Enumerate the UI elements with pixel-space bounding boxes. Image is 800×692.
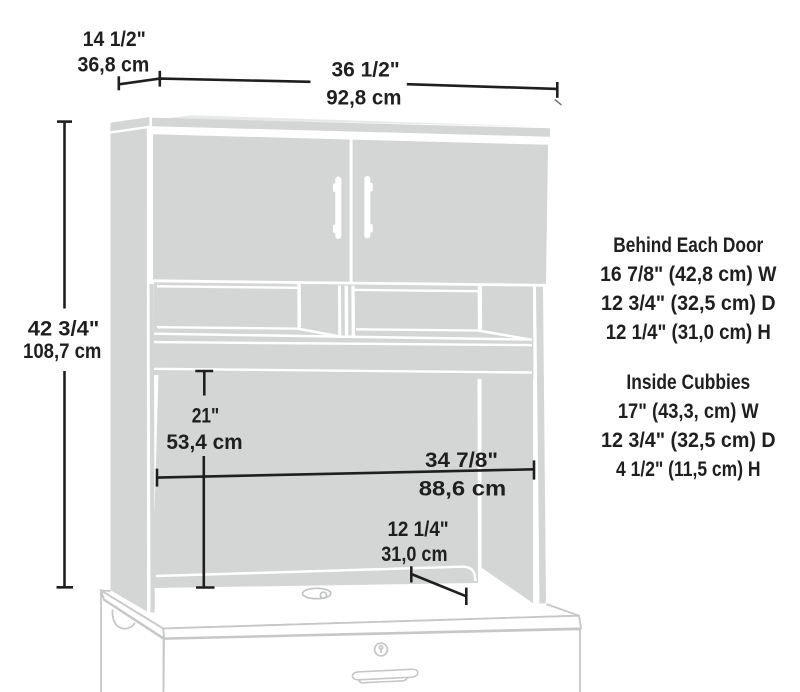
svg-text:4 1/2" (11,5 cm) H: 4 1/2" (11,5 cm) H (616, 457, 761, 481)
svg-text:12 3/4" (32,5 cm) D: 12 3/4" (32,5 cm) D (601, 291, 776, 315)
svg-text:42 3/4": 42 3/4" (28, 317, 100, 341)
svg-text:36 1/2": 36 1/2" (331, 58, 399, 82)
svg-text:17" (43,3, cm) W: 17" (43,3, cm) W (618, 399, 759, 423)
svg-text:34 7/8": 34 7/8" (425, 448, 498, 472)
svg-text:88,6 cm: 88,6 cm (419, 477, 507, 501)
svg-text:12 3/4" (32,5 cm) D: 12 3/4" (32,5 cm) D (601, 428, 776, 452)
svg-text:108,7 cm: 108,7 cm (23, 339, 101, 363)
svg-text:12 1/4" (31,0 cm) H: 12 1/4" (31,0 cm) H (606, 320, 771, 344)
svg-text:Inside Cubbies: Inside Cubbies (626, 370, 750, 394)
svg-text:21": 21" (192, 404, 220, 428)
svg-text:36,8 cm: 36,8 cm (78, 53, 150, 77)
svg-text:12 1/4": 12 1/4" (387, 517, 448, 541)
svg-text:31,0 cm: 31,0 cm (381, 542, 447, 566)
svg-text:14 1/2": 14 1/2" (83, 27, 146, 51)
svg-text:92,8 cm: 92,8 cm (326, 86, 401, 110)
svg-text:16 7/8" (42,8 cm) W: 16 7/8" (42,8 cm) W (600, 262, 777, 286)
svg-text:Behind Each Door: Behind Each Door (613, 233, 764, 257)
svg-text:53,4 cm: 53,4 cm (166, 430, 242, 454)
